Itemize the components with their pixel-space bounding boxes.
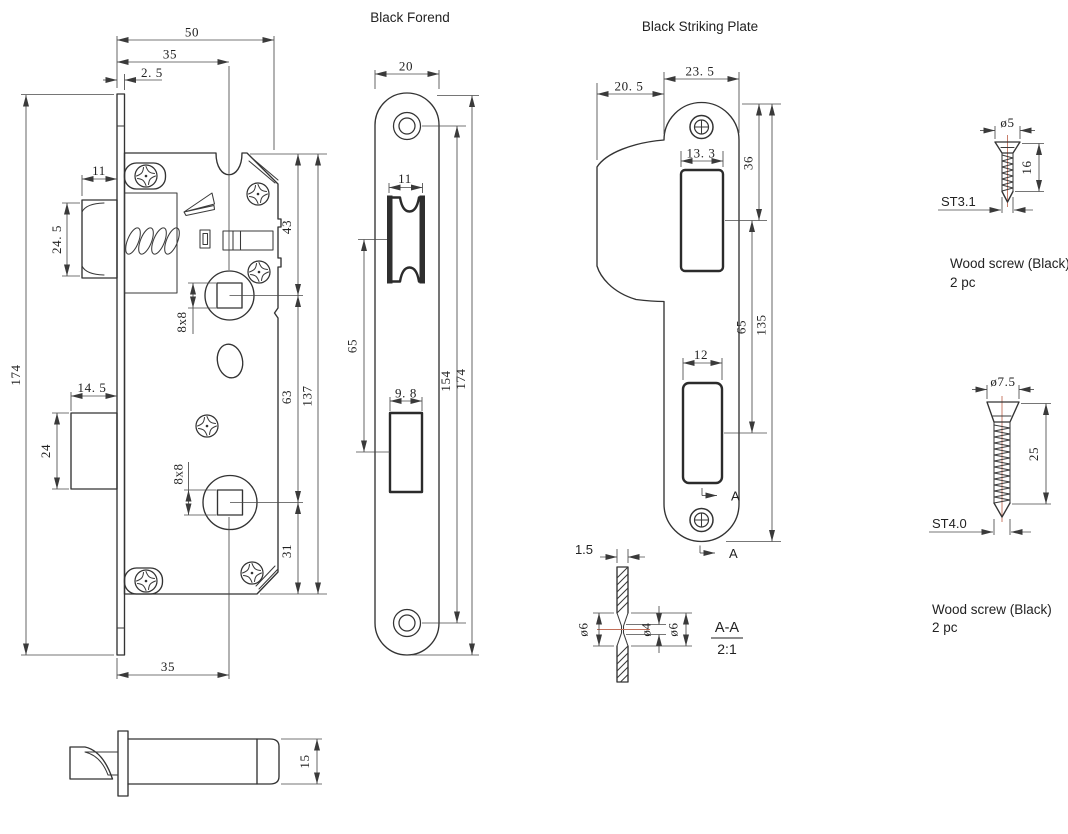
dim-faceplate-thickness: 2. 5	[103, 65, 163, 90]
dim-text: 16	[1019, 160, 1034, 174]
dim-text: 174	[453, 368, 468, 389]
dim-text: 174	[8, 364, 23, 385]
dim-text: 31	[279, 544, 294, 558]
dim-text: 13. 3	[687, 146, 716, 161]
lock-case-outline	[125, 153, 282, 594]
thread-label: ST3.1	[941, 194, 976, 209]
dim-text: 20	[399, 59, 413, 74]
technical-drawing-page: 50 35 2. 5 11 24. 5 174	[0, 0, 1068, 834]
latch-bolt	[82, 200, 117, 278]
dim-spindle-hole: 8x8	[174, 283, 216, 334]
faceplate-strip	[117, 94, 125, 655]
screw-hole-cross-icon	[690, 116, 713, 139]
latch-cap	[257, 739, 279, 784]
bottom-corner-slot	[256, 566, 278, 589]
dim-forend-width: 20	[375, 59, 439, 90]
latch-barrel	[128, 739, 257, 784]
dim-cylinder-hole: 8x8	[171, 462, 217, 515]
countersunk-hole-icon	[394, 113, 421, 140]
dim-text: 135	[754, 314, 769, 335]
dim-striker-top-to-latch: 36	[725, 104, 781, 221]
dim-text: 35	[163, 47, 177, 62]
section-cut-markers: A A	[700, 488, 740, 561]
dim-text: ø7.5	[990, 374, 1015, 389]
dim-text: 25	[1026, 447, 1041, 461]
latch-bolt-bevels	[82, 203, 104, 275]
dim-text: 11	[398, 171, 412, 186]
dim-forend-cutout-spacing: 65	[345, 240, 391, 453]
dim-text: 15	[297, 754, 312, 768]
stop-pin	[200, 230, 210, 248]
striker-latch-cutout	[681, 170, 723, 271]
dim-large-head-dia: ø7.5	[972, 374, 1034, 399]
dim-small-thread: ST3.1	[938, 194, 1033, 213]
dim-text: 43	[279, 220, 294, 234]
dim-latch-height: 24. 5	[49, 203, 80, 276]
dim-text: 63	[279, 390, 294, 404]
screw-head-icon	[241, 562, 263, 584]
dim-small-length: 16	[1015, 144, 1044, 192]
latch-spring	[123, 226, 183, 256]
dim-text: 1.5	[575, 542, 593, 557]
forend-bolt-cutout	[390, 413, 422, 492]
dim-text: ø6	[666, 622, 681, 636]
forend-title: Black Forend	[370, 10, 450, 25]
forend-view: Black Forend 20 11 65 9. 8	[345, 10, 480, 655]
section-label-text: A-A	[715, 620, 740, 636]
dim-large-length: 25	[1012, 404, 1051, 505]
latch-head-detail	[85, 752, 118, 775]
latch-flange	[118, 731, 128, 796]
dim-striker-latch-cutout: 13. 3	[681, 146, 723, 168]
section-marker-a: A	[731, 489, 740, 504]
small-screw-qty: 2 pc	[950, 275, 976, 290]
dim-latch-width: 11	[82, 163, 117, 196]
dim-forend-bolt-cutout: 9. 8	[390, 386, 422, 412]
screw-head-icon	[247, 183, 269, 205]
screw-hole-cross-icon	[690, 509, 713, 532]
large-screw-qty: 2 pc	[932, 620, 958, 635]
dim-top-to-spindle: 43	[250, 154, 327, 296]
striker-bolt-cutout	[683, 383, 722, 483]
screw-head-icon	[196, 415, 218, 437]
latch-detail-view: 15	[70, 731, 322, 796]
lever-wedge	[184, 193, 215, 216]
dim-bolt-width: 14. 5	[71, 380, 117, 411]
section-scale-text: 2:1	[717, 641, 737, 657]
large-screw-figure: ø7.5 25 ST4.0 Wood screw (Black) 2 pc	[929, 374, 1052, 635]
striking-plate-outline	[597, 103, 739, 542]
lock-body-view: 50 35 2. 5 11 24. 5 174	[8, 25, 327, 680]
dim-latch-detail-height: 15	[281, 739, 322, 784]
countersunk-hole-icon	[394, 610, 421, 637]
dim-backset-bottom: 35	[117, 658, 229, 679]
oval-hole	[214, 342, 246, 380]
dim-text: 50	[185, 25, 199, 40]
screw-head-icon	[135, 165, 157, 187]
large-screw-caption: Wood screw (Black)	[932, 602, 1052, 617]
bolt-tail	[223, 231, 273, 250]
dim-overall-width: 50	[117, 25, 274, 151]
thread-label: ST4.0	[932, 516, 967, 531]
screw-head-icon	[248, 261, 270, 283]
dim-forend-latch-cutout: 11	[389, 171, 423, 193]
faceplate-ticks	[117, 126, 125, 628]
section-marker-a: A	[729, 546, 738, 561]
dim-text: 137	[300, 385, 315, 406]
dim-text: 35	[161, 659, 175, 674]
deadbolt	[71, 413, 117, 489]
stop-pin-inner	[203, 234, 208, 245]
dim-text: 8x8	[171, 463, 186, 484]
dim-large-thread: ST4.0	[929, 516, 1031, 535]
dim-text: 23. 5	[686, 64, 715, 79]
dim-text: ø6	[576, 622, 591, 636]
dim-text: 20. 5	[615, 79, 644, 94]
forend-latch-cutout	[387, 196, 425, 284]
dim-spindle-to-cylinder: 63	[279, 296, 298, 503]
bolt-tail-lines	[233, 231, 241, 250]
dim-text: ø5	[1000, 115, 1014, 130]
striking-plate-view: Black Striking Plate 23. 5 20. 5 13. 3 3…	[597, 19, 781, 561]
dim-section-thickness: 1.5	[575, 542, 645, 563]
small-screw-caption: Wood screw (Black)	[950, 256, 1068, 271]
dim-text: 24. 5	[49, 225, 64, 254]
dim-text: 2. 5	[141, 65, 163, 80]
screw-head-profile	[987, 402, 1019, 422]
dim-text: 65	[734, 320, 749, 334]
dim-text: 9. 8	[395, 386, 417, 401]
dim-striker-lip-width: 20. 5	[597, 79, 664, 161]
dim-text: 8x8	[174, 311, 189, 332]
dim-cylinder-to-bottom: 31	[279, 503, 298, 595]
dim-text: 14. 5	[78, 380, 107, 395]
lock-technical-drawing: 50 35 2. 5 11 24. 5 174	[0, 0, 1068, 834]
dim-text: 65	[345, 339, 360, 353]
dim-text: 154	[438, 370, 453, 391]
section-view: 1.5 ø6 ø4 ø6 A-A 2:1	[575, 542, 743, 682]
striking-plate-title: Black Striking Plate	[642, 19, 758, 34]
small-screw-figure: ø5 16 ST3.1 Wood screw (Black) 2 pc	[938, 115, 1068, 290]
dim-text: 36	[741, 156, 756, 170]
dim-text: 24	[38, 444, 53, 458]
dim-backset: 35	[117, 47, 229, 63]
dim-bolt-height: 24	[38, 413, 69, 489]
section-label: A-A 2:1	[711, 620, 743, 657]
dim-text: 11	[92, 163, 106, 178]
dim-striker-bolt-cutout: 12	[683, 347, 722, 380]
screw-head-icon	[135, 570, 157, 592]
dim-text: 12	[694, 347, 708, 362]
dim-text: ø4	[639, 622, 654, 636]
